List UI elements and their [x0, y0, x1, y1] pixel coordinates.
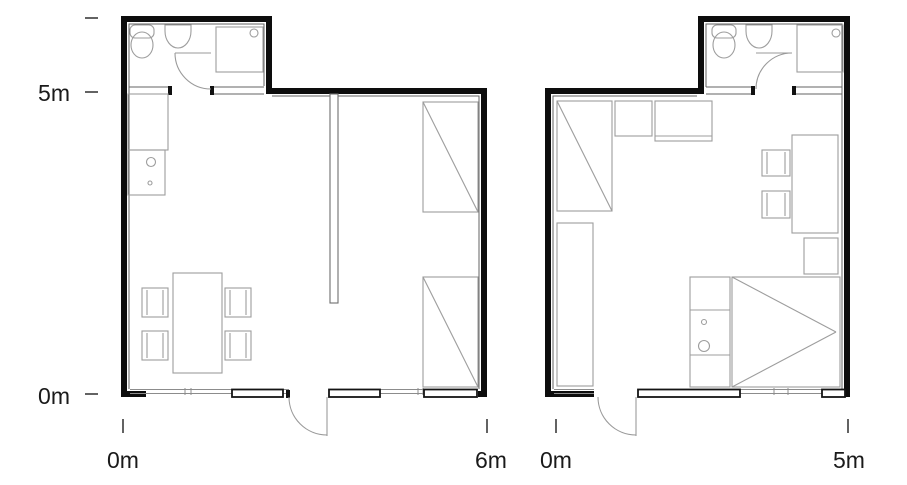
chair — [142, 288, 168, 317]
x-axis-right-plan-5m: 5m — [833, 447, 865, 473]
chair — [142, 331, 168, 360]
window — [329, 390, 380, 398]
chair — [762, 150, 790, 176]
chair — [762, 191, 790, 218]
entry-door-swing — [289, 397, 327, 435]
kitchen-counter — [128, 94, 168, 150]
y-axis-label-5m: 5m — [38, 80, 70, 106]
bathroom-door-swing — [175, 53, 211, 89]
left-floor-plan — [124, 19, 484, 436]
sink — [165, 25, 191, 48]
bed-fold — [732, 277, 836, 332]
door-jamb — [286, 390, 290, 398]
chair — [225, 331, 251, 360]
sink — [746, 25, 772, 48]
desk — [792, 135, 838, 233]
wall-inner-line — [129, 24, 264, 389]
toilet-bowl — [131, 32, 153, 58]
shower-drain — [250, 29, 258, 37]
bathroom-door-swing — [756, 53, 792, 89]
bed-diagonal — [423, 102, 478, 212]
toilet-bowl — [713, 32, 735, 58]
x-axis-right-plan-0m: 0m — [540, 447, 572, 473]
kitchen-counter — [128, 150, 165, 195]
wall-inner-line — [706, 24, 842, 389]
wall-inner-line — [272, 96, 479, 389]
outer-wall — [124, 19, 484, 394]
kitchen-knob — [702, 320, 707, 325]
axes: 5m 0m 0m 6m 0m 5m — [38, 18, 865, 473]
cabinet — [655, 101, 712, 141]
chair — [225, 288, 251, 317]
door-jamb — [792, 86, 796, 95]
kitchen-sink — [699, 341, 710, 352]
door-jamb — [168, 86, 172, 95]
floor-plan-figure: 5m 0m 0m 6m 0m 5m — [0, 0, 907, 485]
wall-inner-line — [553, 96, 697, 389]
window — [638, 390, 740, 398]
bed — [732, 277, 840, 387]
window — [424, 390, 477, 398]
cabinet — [615, 101, 652, 136]
bed-diagonal — [423, 277, 478, 387]
kitchen-sink — [147, 158, 156, 167]
x-axis-left-plan-0m: 0m — [107, 447, 139, 473]
shower — [797, 25, 843, 72]
window — [232, 390, 283, 398]
nightstand — [804, 238, 838, 274]
x-axis-left-plan-6m: 6m — [475, 447, 507, 473]
partition-wall — [330, 94, 338, 303]
dining-table — [173, 273, 222, 373]
wardrobe-diagonal — [557, 101, 612, 211]
y-axis-label-0m: 0m — [38, 383, 70, 409]
floor-plans-canvas: 5m 0m 0m 6m 0m 5m — [0, 0, 907, 485]
entry-door-swing — [598, 397, 636, 435]
shower — [216, 27, 263, 72]
kitchen-knob — [148, 181, 152, 185]
shower-drain — [832, 29, 840, 37]
bed-fold — [732, 332, 836, 387]
right-floor-plan — [548, 19, 847, 436]
door-jamb — [210, 86, 214, 95]
kitchen-block — [690, 277, 730, 387]
door-jamb — [751, 86, 755, 95]
window — [822, 390, 845, 398]
counter — [557, 223, 593, 386]
